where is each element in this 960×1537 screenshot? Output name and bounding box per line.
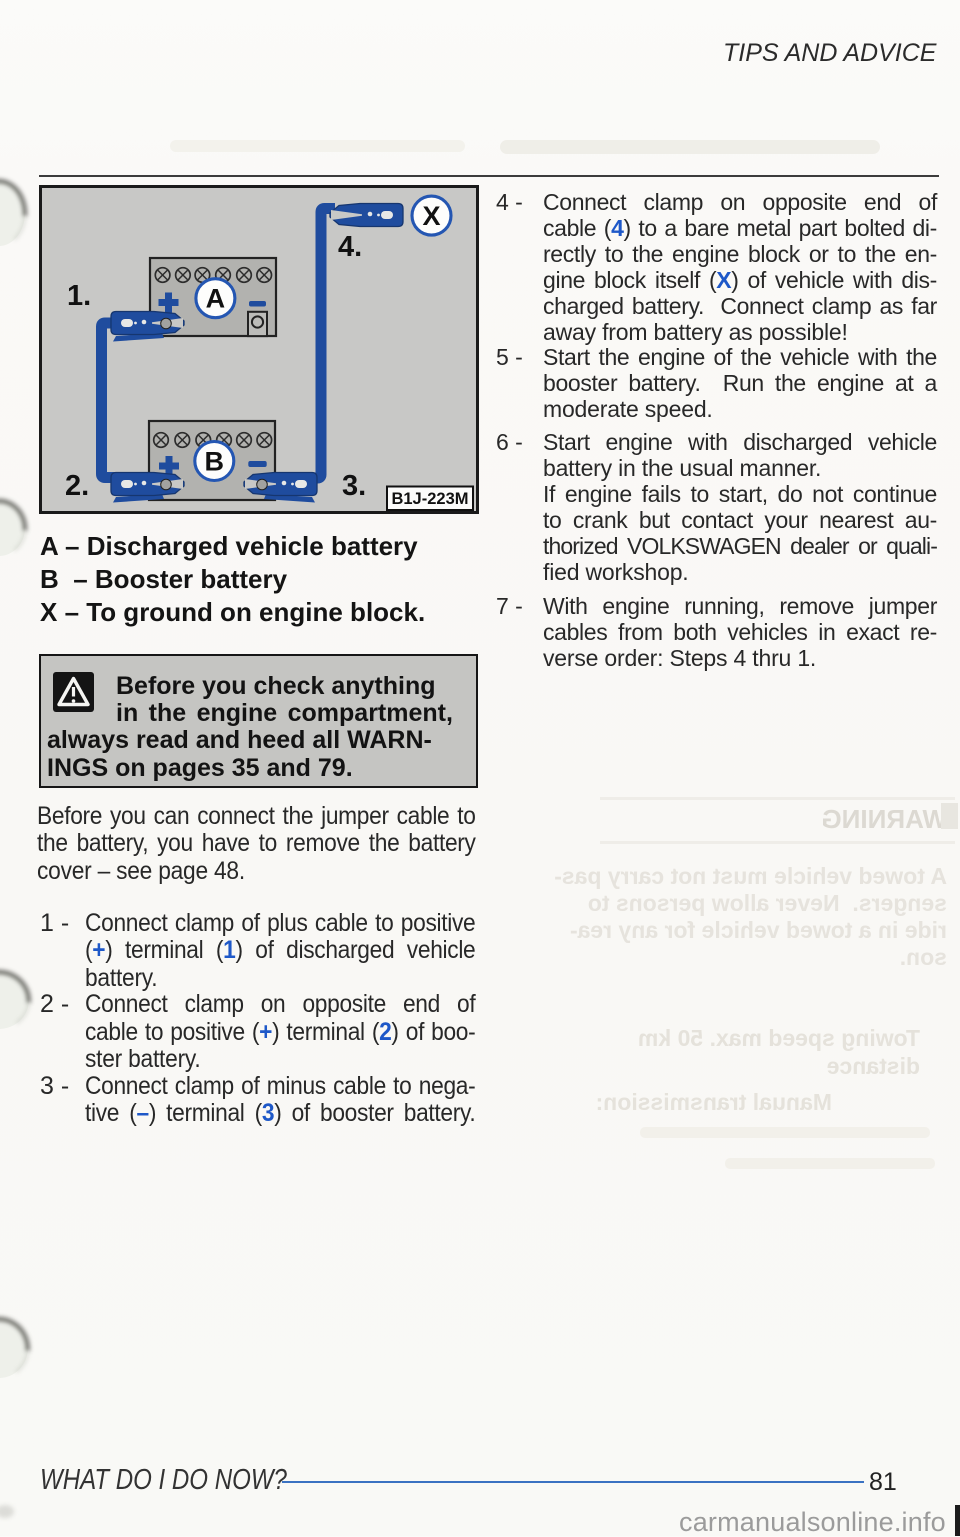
svg-text:A: A (206, 284, 226, 314)
svg-text:X: X (422, 201, 440, 231)
svg-text:1.: 1. (67, 280, 91, 312)
svg-text:B1J-223M: B1J-223M (391, 490, 468, 508)
svg-text:3.: 3. (342, 470, 366, 502)
svg-text:B: B (205, 446, 225, 476)
svg-text:4.: 4. (338, 231, 362, 263)
svg-text:2.: 2. (65, 470, 89, 502)
